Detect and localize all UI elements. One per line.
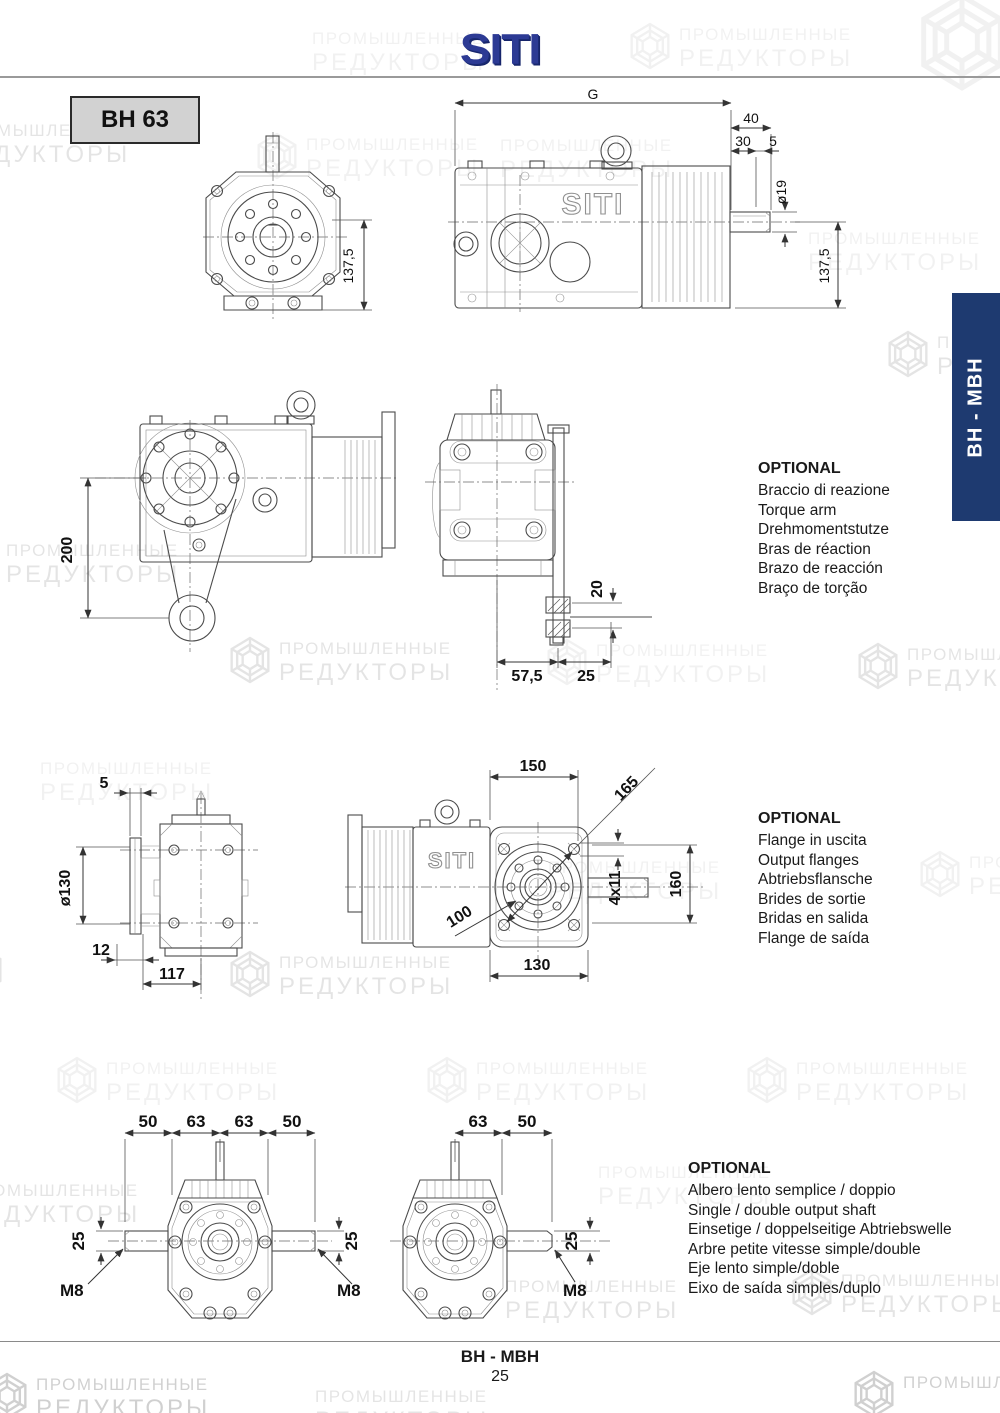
torque-arm-end-drawing: 20 57,5 25: [415, 378, 660, 690]
front-view-drawing: 137,5: [195, 128, 390, 323]
watermark: ПРОМЫШЛЕННЫЕРЕДУКТОРЫ: [856, 642, 1000, 693]
torque-bushing: [546, 597, 652, 645]
optional-block-output-shaft: OPTIONAL Albero lento semplice / doppio …: [688, 1160, 952, 1298]
dim-label-30: 30: [735, 133, 751, 149]
dim-label-dia130: ø130: [57, 870, 74, 907]
optional-line: Braccio di reazione: [758, 481, 890, 501]
watermark: ПРОМЫШЛЕННЫЕРЕДУКТОРЫ: [55, 1056, 280, 1107]
dim-label-50l: 50: [139, 1112, 158, 1131]
header-rule: [0, 76, 1000, 78]
side-tab: BH - MBH: [952, 293, 1000, 521]
dim-label-25l: 25: [69, 1232, 88, 1251]
flange-bolt-holes: [190, 1212, 251, 1273]
dim-label-12: 12: [92, 942, 110, 959]
optional-line: Brides de sortie: [758, 890, 873, 910]
dim-label-25r: 25: [342, 1232, 361, 1251]
optional-title: OPTIONAL: [758, 810, 873, 828]
thread-label-m8: M8: [563, 1281, 587, 1300]
dim-label-63l: 63: [187, 1112, 206, 1131]
dim-label-5: 5: [769, 133, 777, 149]
dim-label-150: 150: [520, 758, 547, 775]
dim-label-20: 20: [589, 580, 606, 598]
dim-label-50r: 50: [283, 1112, 302, 1131]
optional-line: Arbre petite vitesse simple/double: [688, 1240, 952, 1260]
optional-line: Einsetige / doppelseitige Abtriebswelle: [688, 1220, 952, 1240]
single-shaft-drawing: 63 50 25 M8: [385, 1105, 635, 1330]
dim-label-40: 40: [743, 110, 759, 126]
model-badge: BH 63: [70, 96, 200, 144]
optional-line: Drehmomentstutze: [758, 520, 890, 540]
optional-line: Eixo de saída simples/duplo: [688, 1279, 952, 1299]
optional-line: Bridas en salida: [758, 909, 873, 929]
optional-line: Brazo de reacción: [758, 559, 890, 579]
siti-logo: SITI: [0, 22, 1000, 76]
dim-label-160: 160: [668, 871, 685, 898]
optional-title: OPTIONAL: [758, 460, 890, 478]
optional-line: Output flanges: [758, 851, 873, 871]
thread-label-m8-right: M8: [337, 1281, 361, 1300]
optional-line: Albero lento semplice / doppio: [688, 1181, 952, 1201]
watermark: [0, 946, 4, 994]
torque-arm-side-drawing: 200: [55, 378, 400, 693]
catalog-page: ПРОМЫШЛЕННЫЕРЕДУКТОРЫ ПРОМЫШЛЕННЫЕРЕДУКТ…: [0, 0, 1000, 1413]
thread-label-m8-left: M8: [60, 1281, 84, 1300]
dim-label-575: 57,5: [511, 668, 542, 685]
watermark: ПРОМЫШЛЕННЫЕРЕДУКТОРЫ: [315, 1384, 489, 1413]
dim-label-50: 50: [518, 1112, 537, 1131]
cast-logo: SITI: [561, 188, 624, 221]
dim-label-130: 130: [524, 957, 551, 974]
dim-label-25-bush: 25: [577, 668, 595, 685]
optional-line: Braço de torção: [758, 579, 890, 599]
optional-line: Flange in uscita: [758, 831, 873, 851]
double-shaft-drawing: 50 63 63 50 25: [58, 1105, 380, 1330]
cast-logo-2: SITI: [428, 848, 476, 873]
dim-label-117: 117: [159, 966, 185, 983]
dim-label-plate-5: 5: [100, 775, 109, 792]
optional-block-torque-arm: OPTIONAL Braccio di reazione Torque arm …: [758, 460, 890, 598]
flange-face-drawing: SITI 150 165 4x11 160 10: [340, 748, 710, 996]
footer-series: BH - MBH: [0, 1347, 1000, 1367]
optional-line: Eje lento simple/doble: [688, 1259, 952, 1279]
dim-label-front-height: 137,5: [340, 248, 356, 283]
footer-page-number: 25: [0, 1368, 1000, 1386]
flange-bolt-holes: [425, 1212, 486, 1273]
optional-line: Torque arm: [758, 501, 890, 521]
dim-label-165: 165: [611, 773, 642, 804]
dim-label-63: 63: [469, 1112, 488, 1131]
optional-line: Single / double output shaft: [688, 1201, 952, 1221]
watermark: ПРОМЫШЛЕННЫЕРЕДУКТОРЫ: [745, 1056, 970, 1107]
dim-label-200: 200: [59, 537, 76, 564]
dim-label-g: G: [588, 86, 599, 102]
side-view-drawing: G 40 30 5 SITI ø19 137,5: [440, 85, 870, 335]
side-tab-label: BH - MBH: [965, 357, 988, 457]
optional-line: Flange de saída: [758, 929, 873, 949]
dim-label-side-height: 137,5: [816, 248, 832, 283]
dim-label-shaft-dia: ø19: [773, 180, 789, 204]
dim-label-4x11: 4x11: [607, 871, 624, 906]
flange-end-drawing: 5 ø130 12 117: [55, 755, 320, 1010]
optional-line: Abtriebsflansche: [758, 870, 873, 890]
optional-block-output-flanges: OPTIONAL Flange in uscita Output flanges…: [758, 810, 873, 948]
footer-rule: [0, 1341, 1000, 1342]
optional-title: OPTIONAL: [688, 1160, 952, 1178]
dim-label-63r: 63: [235, 1112, 254, 1131]
dim-label-25: 25: [562, 1232, 581, 1251]
watermark: ПРОМЫШЛЕННЫЕРЕДУКТОРЫ: [425, 1056, 650, 1107]
watermark: ПРОМЫШЛЕННЫЕРЕДУКТОРЫ: [918, 850, 1000, 901]
optional-line: Bras de réaction: [758, 540, 890, 560]
